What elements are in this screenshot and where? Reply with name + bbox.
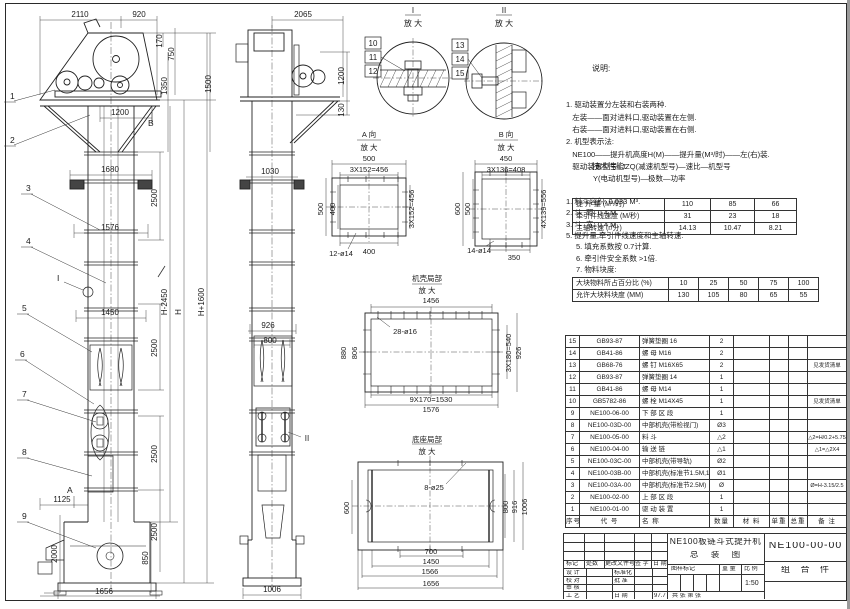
- balloon-label: 14: [456, 55, 465, 64]
- dim-label: 920: [132, 10, 146, 19]
- view-b-zoom-label: 放 大: [497, 142, 515, 152]
- dim-label: 3X152=456: [407, 190, 416, 229]
- scale-value: 1:50: [745, 580, 759, 587]
- section-marker-a: A: [67, 485, 73, 495]
- table-row: 14GB41-86螺 母 M162: [566, 348, 847, 360]
- table-row: 4NE100-03B-00中部机壳(标准节1.5M,1M)Ø1: [566, 468, 847, 480]
- balloon-label: 4: [26, 236, 31, 246]
- view-a-title: A 向: [362, 129, 376, 139]
- dim-label: 1125: [53, 495, 71, 504]
- dim-label: 500: [363, 154, 376, 163]
- dim-label: H: [174, 309, 183, 315]
- side-elevation-view: [236, 25, 340, 590]
- balloon-label: 11: [369, 53, 378, 62]
- note-line: 7. 物料块度:: [576, 264, 846, 276]
- lump-size-table: 大块物料所占百分比 (%)10255075100允许大块料块度 (MM)1301…: [572, 277, 819, 302]
- dim-label: 3X180=540: [504, 334, 513, 373]
- dim-label: H+1600: [197, 287, 206, 316]
- craft-label: 工 艺: [566, 593, 580, 600]
- table-row: 10GB5782-86螺 栓 M14X451见发货清单: [566, 396, 847, 408]
- bill-of-materials: 15GB93-87弹簧垫圈 16214GB41-86螺 母 M16213GB68…: [565, 335, 847, 528]
- check-label: 校 对: [566, 578, 580, 585]
- drawing-number: NE100-00-00: [764, 542, 847, 549]
- base-detail-title: 底座局部: [412, 434, 442, 444]
- drawing-sheet: 1 2 3 4 5 6 7 8 9 B A I 2110 920 170 750…: [0, 0, 850, 609]
- front-elevation-view: [38, 19, 162, 595]
- scale-label: 比 例: [744, 566, 758, 573]
- balloon-label: 15: [456, 69, 465, 78]
- dim-label: 1200: [111, 108, 129, 117]
- detail-ii-zoom-label: 放 大: [495, 18, 513, 28]
- dim-label: 2500: [150, 189, 159, 207]
- bom-header-qty: 数量: [710, 516, 734, 528]
- date-value: 97.7: [654, 593, 666, 600]
- dim-label: 1656: [95, 587, 113, 596]
- note-line: 左装——面对进料口,驱动装置在左侧.: [566, 112, 848, 124]
- balloon-label: 9: [22, 511, 27, 521]
- table-row: 5NE100-03C-00中部机壳(带导轨)Ø2: [566, 456, 847, 468]
- bom-header-unit-weight: 单重: [770, 516, 789, 528]
- dim-label: 3X136=408: [487, 165, 526, 174]
- dim-label: 9X170=1530: [410, 395, 453, 404]
- view-a-zoom-label: 放 大: [360, 142, 378, 152]
- notes-heading: 说明:: [566, 63, 848, 75]
- rev-count-label: 处数: [586, 561, 598, 568]
- dim-label: 2000: [50, 545, 59, 563]
- weight-label: 重 量: [722, 566, 736, 573]
- bom-header-total-weight: 总重: [789, 516, 808, 528]
- dim-label: 3X152=456: [350, 165, 389, 174]
- balloon-label: 8: [22, 447, 27, 457]
- table-row: 8NE100-03D-00中部机壳(带检视门)Ø3: [566, 420, 847, 432]
- table-row: 3NE100-03A-00中部机壳(标准节2.5M)ØØ=H-3.15/2.5: [566, 480, 847, 492]
- dim-label: 2065: [294, 10, 312, 19]
- rev-sign-label: 签 字: [635, 561, 649, 568]
- dim-label: 4X139=556: [539, 190, 548, 229]
- front-dimension-lines: [40, 16, 216, 599]
- casing-zoom-label: 放 大: [418, 285, 436, 295]
- detail-marker-ii: II: [305, 434, 309, 443]
- bom-header-remark: 备 注: [808, 516, 847, 528]
- dim-label: H-2450: [160, 288, 169, 315]
- note-line: 1. 驱动装置分左装和右装两种.: [566, 99, 848, 111]
- balloon-label: 1: [10, 91, 15, 101]
- hole-callout: 12-ø14: [329, 249, 353, 258]
- dim-label: 1576: [101, 223, 119, 232]
- dim-label: 500: [463, 203, 472, 216]
- tech-heading: 技术性能:: [566, 161, 848, 173]
- approve-label: 批 准: [614, 578, 628, 585]
- note-line: 右装——面对进料口,驱动装置在右侧.: [566, 124, 848, 136]
- dim-label: 500: [316, 203, 325, 216]
- rev-mark-label: 标记: [566, 561, 578, 568]
- secondary-notes: 5. 填充系数按 0.7计算.6. 牵引件安全系数 >1倍.7. 物料块度:: [576, 241, 846, 276]
- balloon-label: 13: [456, 41, 465, 50]
- side-dimension-lines: [243, 16, 350, 599]
- detail-i-zoom-label: 放 大: [404, 18, 422, 28]
- table-row: 提 升 量 (M³/时)1108566: [573, 199, 797, 211]
- dim-label: 450: [500, 154, 513, 163]
- dim-label: 1576: [423, 405, 440, 414]
- rev-doc-label: 更改文件号: [605, 561, 635, 568]
- drawing-title-line2: 总 装 图: [671, 551, 764, 558]
- dim-label: 806: [350, 347, 359, 360]
- part-type-label: 组 合 件: [767, 566, 847, 573]
- dim-label: 800: [263, 336, 277, 345]
- table-row: 允许大块料块度 (MM)130105806555: [573, 290, 819, 302]
- table-row: 7NE100-05-00料 斗△2△2=H/0.2+5.75: [566, 432, 847, 444]
- dim-label: 2500: [150, 445, 159, 463]
- stamp-mark-label: 图样标记: [671, 566, 695, 573]
- dim-label: 750: [167, 47, 176, 61]
- dim-label: 1456: [423, 296, 440, 305]
- dim-label: 926: [514, 347, 523, 360]
- dim-label: 800: [501, 501, 510, 514]
- table-row: 6NE100-04-00输 送 链△1△1=△2X4: [566, 444, 847, 456]
- dim-label: 1566: [422, 567, 439, 576]
- dim-label: 350: [508, 253, 521, 262]
- table-row: 13GB68-76螺 钉 M16X652见发货清单: [566, 360, 847, 372]
- dim-label: 400: [363, 247, 376, 256]
- front-balloon-leaders: [4, 90, 152, 548]
- dim-label: 1006: [263, 585, 281, 594]
- dim-label: 926: [261, 321, 275, 330]
- dim-label: 1006: [520, 499, 529, 516]
- detail-ii-title: II: [502, 6, 506, 15]
- table-row: 主轴转速 (r/分)14.1310.478.21: [573, 223, 797, 235]
- detail-marker-i: I: [57, 273, 59, 283]
- dim-label: 916: [510, 501, 519, 514]
- detail-ii-view: [452, 15, 544, 119]
- table-row: 2NE100-02-00上 部 区 段1: [566, 492, 847, 504]
- drawing-title-line1: NE100板链斗式提升机: [667, 538, 764, 545]
- capacity-speed-table: 提 升 量 (M³/时)1108566牵引件线速度 (M/秒)312318主轴转…: [572, 198, 797, 235]
- bom-header-code: 代 号: [580, 516, 640, 528]
- review-label: 审 核: [566, 585, 580, 592]
- balloon-label: 10: [369, 39, 378, 48]
- dim-label: 1680: [101, 165, 119, 174]
- table-row: 11GB41-86螺 母 M141: [566, 384, 847, 396]
- dim-label: 1500: [204, 75, 213, 93]
- view-b-title: B 向: [499, 129, 514, 139]
- balloon-label: 3: [26, 183, 31, 193]
- date-label: 日 期: [614, 593, 628, 600]
- dim-label: 2110: [71, 10, 89, 19]
- dim-label: 170: [155, 34, 164, 48]
- dim-label: 2500: [150, 523, 159, 541]
- hole-callout: 8-ø25: [424, 483, 444, 492]
- dim-label: 880: [339, 347, 348, 360]
- bom-header-name: 名 称: [640, 516, 710, 528]
- dim-label: 700: [425, 547, 438, 556]
- dim-label: 130: [337, 103, 346, 117]
- balloon-label: 5: [22, 303, 27, 313]
- dim-label: 1656: [423, 579, 440, 588]
- table-row: 大块物料所占百分比 (%)10255075100: [573, 278, 819, 290]
- base-zoom-label: 放 大: [418, 446, 436, 456]
- detail-i-title: I: [412, 6, 414, 15]
- dim-label: 400: [328, 203, 337, 216]
- design-label: 设 计: [566, 570, 580, 577]
- dim-label: 1350: [160, 77, 169, 95]
- sheet-count-label: 共 张 第 张: [672, 593, 701, 600]
- balloon-label: 2: [10, 135, 15, 145]
- rev-date-label: 日 期: [653, 561, 667, 568]
- dim-label: 1030: [261, 167, 279, 176]
- standardization-label: 标准化: [614, 570, 632, 577]
- dim-label: 600: [453, 203, 462, 216]
- table-row: 9NE100-06-00下 部 区 段1: [566, 408, 847, 420]
- section-marker-b: B: [148, 118, 154, 128]
- table-row: 牵引件线速度 (M/秒)312318: [573, 211, 797, 223]
- dim-label: 1200: [337, 67, 346, 85]
- note-line: 5. 填充系数按 0.7计算.: [576, 241, 846, 253]
- dim-label: 1450: [423, 557, 440, 566]
- casing-detail-title: 机壳局部: [412, 273, 442, 283]
- table-row: 12GB93-87弹簧垫圈 141: [566, 372, 847, 384]
- bom-header-no: 序号: [566, 516, 580, 528]
- balloon-label: 6: [20, 349, 25, 359]
- dim-label: 600: [342, 502, 351, 515]
- title-block: 标记 处数 更改文件号 签 字 日 期 设 计 校 对 审 核 工 艺 标准化 …: [563, 533, 847, 599]
- hole-callout: 28-ø16: [393, 327, 417, 336]
- balloon-label: 7: [22, 389, 27, 399]
- dim-label: 850: [141, 551, 150, 565]
- dim-label: 2500: [150, 339, 159, 357]
- bom-header-material: 材 料: [734, 516, 770, 528]
- table-row: 1NE100-01-00驱 动 装 置1: [566, 504, 847, 516]
- detail-i-view: [365, 15, 453, 118]
- bom-header-row: 序号 代 号 名 称 数量 材 料 单重 总重 备 注: [566, 516, 847, 528]
- hole-callout: 14-ø14: [467, 246, 491, 255]
- balloon-label: 12: [369, 67, 378, 76]
- dim-label: 1450: [101, 308, 119, 317]
- table-row: 15GB93-87弹簧垫圈 162: [566, 336, 847, 348]
- note-line: 6. 牵引件安全系数 >1倍.: [576, 253, 846, 265]
